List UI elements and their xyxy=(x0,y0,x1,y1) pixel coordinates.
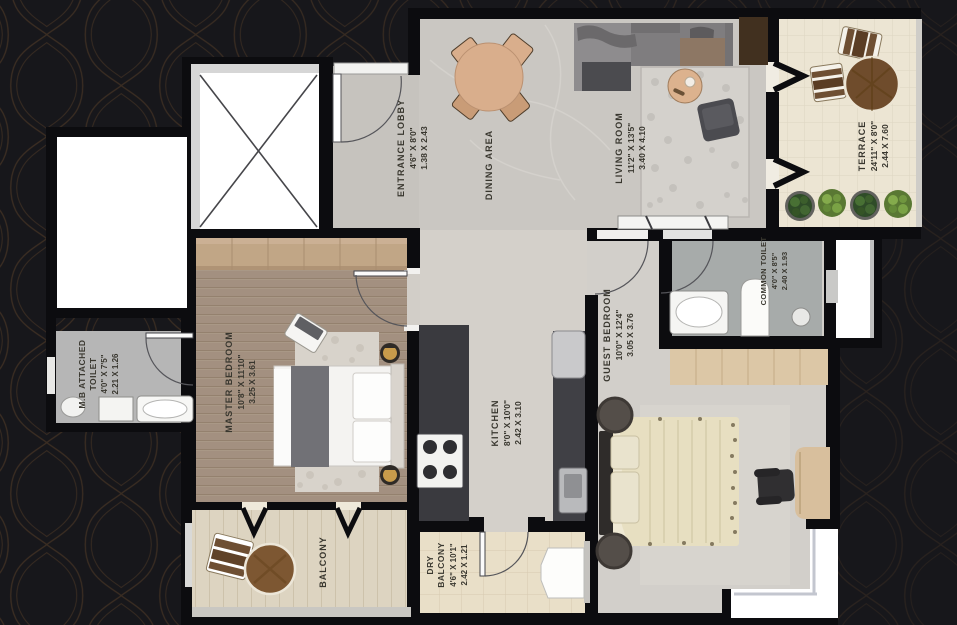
svg-text:M.B ATTACHED: M.B ATTACHED xyxy=(77,339,87,408)
svg-text:3.05 X 3.76: 3.05 X 3.76 xyxy=(625,313,635,357)
svg-text:COMMON TOILET: COMMON TOILET xyxy=(759,237,768,306)
svg-text:LIVING ROOM: LIVING ROOM xyxy=(614,112,624,184)
svg-text:TOILET: TOILET xyxy=(88,357,98,390)
svg-text:1.38 X 2.43: 1.38 X 2.43 xyxy=(419,126,429,170)
svg-text:2.21 X 1.26: 2.21 X 1.26 xyxy=(111,353,120,394)
svg-text:4'0" X 7'5": 4'0" X 7'5" xyxy=(100,354,109,393)
svg-text:2.40 X 1.93: 2.40 X 1.93 xyxy=(780,252,789,290)
svg-text:4'0" X 8'5": 4'0" X 8'5" xyxy=(770,252,779,289)
svg-text:KITCHEN: KITCHEN xyxy=(490,400,500,447)
svg-text:10'8" X 11'10": 10'8" X 11'10" xyxy=(236,354,246,409)
svg-text:3.40 X 4.10: 3.40 X 4.10 xyxy=(637,126,647,170)
svg-text:10'0" X 12'4": 10'0" X 12'4" xyxy=(614,310,624,361)
svg-text:2.44 X 7.60: 2.44 X 7.60 xyxy=(880,124,890,168)
svg-text:BALCONY: BALCONY xyxy=(436,542,446,588)
svg-text:BALCONY: BALCONY xyxy=(318,536,328,588)
svg-text:24'11" X 8'0": 24'11" X 8'0" xyxy=(869,121,879,171)
svg-text:TERRACE: TERRACE xyxy=(857,121,867,172)
svg-text:GUEST BEDROOM: GUEST BEDROOM xyxy=(602,288,612,382)
svg-text:ENTRANCE LOBBY: ENTRANCE LOBBY xyxy=(396,99,406,197)
svg-text:11'2" X 13'5": 11'2" X 13'5" xyxy=(626,123,636,173)
svg-text:DRY: DRY xyxy=(425,555,435,574)
svg-text:3.25 X 3.61: 3.25 X 3.61 xyxy=(247,360,257,404)
svg-text:4'6" X 8'0": 4'6" X 8'0" xyxy=(408,127,418,168)
svg-text:2.42 X 3.10: 2.42 X 3.10 xyxy=(513,401,523,445)
svg-text:4'6" X 10'1": 4'6" X 10'1" xyxy=(449,543,458,587)
svg-text:2.42 X 1.21: 2.42 X 1.21 xyxy=(460,544,469,585)
svg-text:MASTER BEDROOM: MASTER BEDROOM xyxy=(224,331,234,433)
svg-text:DINING AREA: DINING AREA xyxy=(484,130,494,200)
svg-text:8'0" X 10'0": 8'0" X 10'0" xyxy=(502,400,512,446)
